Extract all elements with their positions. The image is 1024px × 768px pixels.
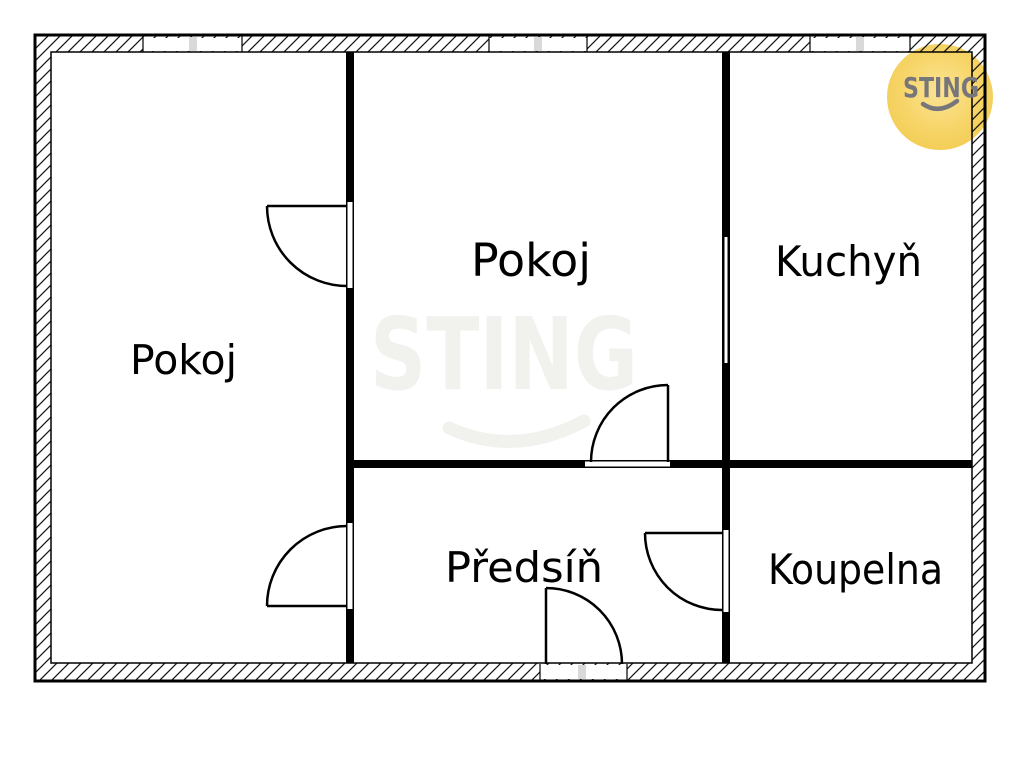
window-left-room [143,37,242,51]
room-labels: Pokoj Pokoj Kuchyň Předsíň Koupelna [130,234,943,594]
sting-logo-text: STING [903,71,979,104]
watermark-text: STING [370,296,638,413]
door-swing-arc [645,533,722,610]
window-mullion-tick [189,37,197,51]
door-swing-arc [546,588,622,664]
window-kitchen [810,37,910,51]
watermark-smile [449,421,584,441]
watermark: STING [370,296,638,441]
room-label-pokoj-left: Pokoj [130,336,237,384]
door-pokoj-left-bottom [267,526,347,606]
door-swing-arc [267,526,347,606]
sting-logo: STING [887,44,993,150]
room-label-kuchyn: Kuchyň [775,237,922,286]
room-label-koupelna: Koupelna [768,545,943,594]
floor-plan-svg: STING [0,0,1024,768]
window-mullion-tick [856,37,864,51]
door-koupelna [645,533,722,610]
entrance-threshold [540,665,627,679]
room-label-pokoj-middle: Pokoj [471,234,591,287]
door-pokoj-left-top [267,206,347,286]
door-opening-pokoj-predsin [585,462,670,467]
door-opening-pokoj-left-bottom [348,523,353,609]
wall-light-core-segment [725,237,728,363]
door-opening-predsin-koupelna [724,530,729,612]
window-mullion-tick [534,37,542,51]
door-swing-arc [267,206,347,286]
door-entrance [546,588,622,664]
room-label-predsin: Předsíň [445,543,603,592]
window-middle-room [489,37,587,51]
door-opening-pokoj-left-top [348,202,353,288]
floor-plan-page: STING [0,0,1024,768]
threshold-tick [578,665,586,679]
